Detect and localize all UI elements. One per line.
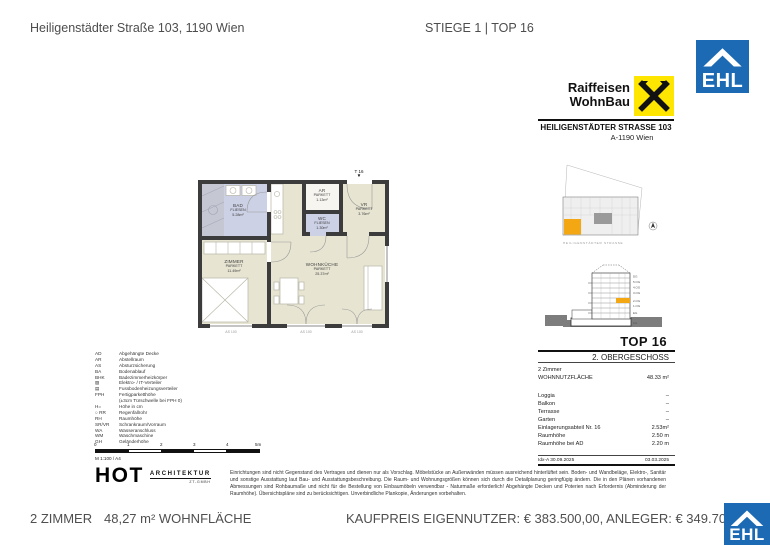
info-row: Garten– bbox=[538, 417, 675, 425]
info-value: 2.20 m bbox=[652, 441, 669, 449]
ehl-logo-top: EHL bbox=[696, 40, 749, 93]
north-arrow-icon bbox=[649, 222, 657, 230]
info-label: Einlagerungsabteil Nr. 16 bbox=[538, 425, 601, 433]
floor-label: 3.OG bbox=[633, 291, 641, 295]
raiffeisen-gable-cross-icon bbox=[634, 76, 674, 116]
disclaimer-text: Einrichtungen sind nicht Gegenstand des … bbox=[230, 470, 666, 498]
highlighted-unit bbox=[564, 219, 581, 235]
dimension-label: AS 100 bbox=[292, 330, 320, 334]
floor-label: DG bbox=[633, 275, 638, 279]
project-address-line1: HEILIGENSTÄDTER STRASSE 103 bbox=[538, 123, 674, 132]
scale-bar-strip bbox=[95, 449, 260, 453]
info-value: – bbox=[666, 401, 669, 409]
scale-tick: 1 bbox=[127, 442, 130, 447]
info-row: Einlagerungsabteil Nr. 162.53m² bbox=[538, 425, 675, 433]
street-label: HEILIGENSTÄDTER STRASSE bbox=[563, 241, 623, 245]
floor-label: 5.OG bbox=[633, 280, 641, 284]
info-value: 48.33 m² bbox=[647, 375, 669, 383]
info-row: Balkon– bbox=[538, 401, 675, 409]
raiffeisen-name-line1: Raiffeisen bbox=[568, 81, 630, 95]
scale-tick: 5m bbox=[255, 442, 261, 447]
info-label: WOHNNUTZFLÄCHE bbox=[538, 375, 593, 383]
ehl-logo-text: EHL bbox=[724, 526, 770, 543]
scale-tick: 2 bbox=[160, 442, 163, 447]
floor-label: EG bbox=[633, 311, 638, 315]
info-value: 2.53m² bbox=[652, 425, 669, 433]
info-row: Terrasse– bbox=[538, 409, 675, 417]
floor-label: 4.OG bbox=[633, 286, 641, 290]
room-label-bad: BAD FLIESEN 5.28m² bbox=[218, 203, 258, 217]
scale-label: M 1:100 / A4 bbox=[95, 456, 121, 461]
info-row: Raumhöhe2.50 m bbox=[538, 433, 675, 441]
info-value: – bbox=[666, 393, 669, 401]
unit-top-number: TOP 16 bbox=[538, 334, 675, 350]
info-value: 2.50 m bbox=[652, 433, 669, 441]
info-row: WOHNNUTZFLÄCHE48.33 m² bbox=[538, 375, 675, 383]
raiffeisen-name: Raiffeisen WohnBau bbox=[568, 81, 630, 110]
plan-date: 03.03.2025 bbox=[645, 458, 669, 463]
ehl-roof-icon bbox=[699, 43, 746, 67]
divider bbox=[538, 464, 675, 466]
floor-label: KG bbox=[633, 321, 638, 325]
rooms-count: 2 Zimmer bbox=[538, 367, 562, 375]
raiffeisen-name-line2: WohnBau bbox=[568, 95, 630, 109]
room-label-vr: VR PARKETT 3.76m² bbox=[344, 202, 384, 216]
highlighted-floor bbox=[616, 298, 630, 303]
info-label: Raumhöhe bei AD bbox=[538, 441, 583, 449]
unit-info-box: TOP 16 2. OBERGESCHOSS 2 Zimmer WOHNNUTZ… bbox=[538, 334, 675, 466]
architect-logo: HOT ARCHITEKTUR ZT-GMBH bbox=[95, 467, 211, 486]
info-row: Raumhöhe bei AD2.20 m bbox=[538, 441, 675, 449]
entrance-marker: T 16 ▼ bbox=[348, 170, 370, 179]
architect-type: ARCHITEKTUR bbox=[150, 471, 211, 479]
raiffeisen-divider bbox=[538, 119, 674, 121]
plan-sheet: Heiligenstädter Straße 103, 1190 Wien ST… bbox=[0, 0, 770, 545]
info-value: – bbox=[666, 417, 669, 425]
info-row-dates: Idx-A 30.09.202503.03.2025 bbox=[538, 456, 675, 464]
info-label: Loggia bbox=[538, 393, 555, 401]
ehl-logo-text: EHL bbox=[696, 71, 749, 91]
site-plan: HEILIGENSTÄDTER STRASSE bbox=[556, 163, 666, 248]
floor-plan-drawing bbox=[192, 170, 397, 338]
info-label: Raumhöhe bbox=[538, 433, 565, 441]
header-address: Heiligenstädter Straße 103, 1190 Wien bbox=[30, 21, 244, 35]
scale-tick: 0 bbox=[94, 442, 97, 447]
footer-area: 48,27 m² WOHNFLÄCHE bbox=[104, 511, 251, 526]
header-unit-ref: STIEGE 1 | TOP 16 bbox=[425, 21, 534, 35]
room-label-zimmer: ZIMMER PARKETT 11.49m² bbox=[212, 259, 256, 273]
scale-tick: 3 bbox=[193, 442, 196, 447]
floor-label: 2.OG bbox=[633, 299, 641, 303]
scale-bar: 0 1 2 3 4 5m M 1:100 / A4 bbox=[95, 442, 265, 464]
room-label-ar: AR PARKETT 1.13m² bbox=[304, 188, 340, 202]
building-core bbox=[594, 213, 612, 224]
building-section: DG 5.OG 4.OG 3.OG 2.OG 1.OG EG KG bbox=[545, 258, 685, 330]
info-value: – bbox=[666, 409, 669, 417]
architect-suffix: ZT-GMBH bbox=[150, 480, 211, 484]
dimension-label: AS 100 bbox=[217, 330, 245, 334]
legend: ADAbgehängte Decke ARAbstellraum ASAbstu… bbox=[95, 351, 265, 445]
footer-rooms: 2 ZIMMER bbox=[30, 511, 92, 526]
entrance-arrow-icon: ▼ bbox=[348, 174, 370, 179]
ehl-roof-icon bbox=[727, 506, 767, 527]
unit-floor: 2. OBERGESCHOSS bbox=[538, 352, 675, 362]
ehl-logo-bottom: EHL bbox=[724, 503, 770, 545]
info-label: Balkon bbox=[538, 401, 555, 409]
floor-plan: T 16 ▼ BAD FLIESEN 5.28m² ZIMMER PARKETT… bbox=[192, 170, 397, 338]
index-note: Idx-A 30.09.2025 bbox=[538, 458, 574, 463]
info-row: Loggia– bbox=[538, 393, 675, 401]
project-address-line2: A-1190 Wien bbox=[538, 133, 674, 142]
scale-tick: 4 bbox=[226, 442, 229, 447]
footer-price: KAUFPREIS EIGENNUTZER: € 383.500,00, ANL… bbox=[346, 511, 737, 526]
room-label-wohnkueche: WOHNKÜCHE PARKETT 25.37m² bbox=[296, 262, 348, 276]
room-label-wc: WC FLIESEN 1.30m² bbox=[304, 216, 340, 230]
info-label: Garten bbox=[538, 417, 555, 425]
info-row-rooms: 2 Zimmer bbox=[538, 367, 675, 375]
info-label: Terrasse bbox=[538, 409, 559, 417]
floor-label: 1.OG bbox=[633, 304, 641, 308]
raiffeisen-logo: Raiffeisen WohnBau bbox=[538, 76, 674, 116]
architect-name: HOT bbox=[95, 467, 144, 486]
dimension-label: AS 100 bbox=[343, 330, 371, 334]
